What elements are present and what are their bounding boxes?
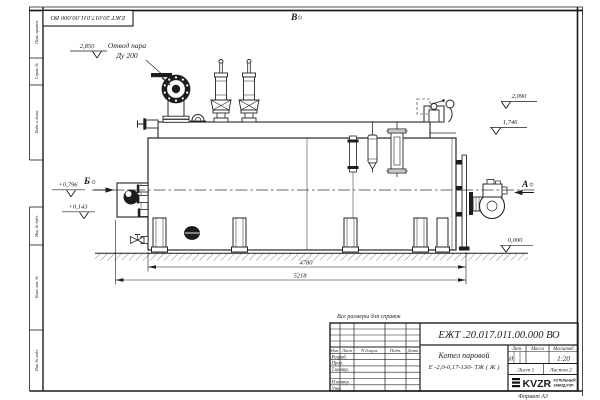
- drain-valve: [131, 235, 149, 244]
- margin-label: Взам. инв. №: [34, 276, 39, 298]
- format-note: Формат А3: [518, 394, 548, 400]
- view-label-v: В: [290, 13, 297, 23]
- dimension-value: 4780: [300, 260, 314, 267]
- manhole: [185, 227, 200, 240]
- margin-label: Инв. № дубл.: [34, 215, 39, 238]
- inverted-designation-box: ЕЖТ 20.017.011.00.000 ВО: [43, 11, 133, 27]
- feed-pump: [469, 180, 507, 219]
- boiler-drawing-canvas: Перв. примен. Справ. № Подп. и дата Инв.…: [0, 0, 600, 400]
- support-leg: [343, 218, 359, 252]
- elevation-mark-2090: 2,090: [501, 93, 537, 109]
- tb-h-data: Дата: [407, 348, 419, 353]
- elevation-value: +0,796: [58, 182, 78, 189]
- support-leg: [413, 218, 429, 252]
- tb-row-prov: Пров.: [331, 362, 344, 367]
- tb-row-utv: Утв.: [332, 387, 342, 392]
- safety-valve-2: [239, 60, 259, 123]
- elevation-mark-2850: 2,850: [70, 43, 107, 58]
- inverted-designation-text: ЕЖТ 20.017.011.00.000 ВО: [51, 14, 127, 21]
- view-label-a: А: [521, 180, 528, 190]
- logo-text: KVZR: [523, 378, 552, 390]
- tb-h-podp: Подп.: [389, 348, 401, 353]
- logo-sub2: ЗАВОД РЭП: [554, 384, 575, 388]
- elevation-mark-0000: 0,000: [500, 237, 533, 252]
- margin-column-labels: Перв. примен. Справ. № Подп. и дата Инв.…: [34, 20, 39, 372]
- margin-label: Справ. №: [34, 63, 39, 79]
- logo-sub1: КОТЕЛЬНЫЙ: [554, 379, 577, 383]
- tb-h-list: Лист: [341, 348, 352, 353]
- tb-product-type: Е -2,0-0,17-130- ТЖ ( Ж ): [428, 364, 500, 371]
- dimension-4780: 4780: [148, 260, 466, 269]
- support-leg: [232, 218, 248, 252]
- tb-col-scale: Масштаб: [552, 347, 574, 352]
- steam-callout-line1: Отвод пара: [108, 41, 147, 50]
- elevation-value: 2,850: [80, 43, 95, 50]
- elevation-value: 2,090: [512, 93, 527, 100]
- support-leg: [436, 218, 450, 252]
- drawing-sheet: Перв. примен. Справ. № Подп. и дата Инв.…: [0, 0, 600, 400]
- tb-row-nkontr: Н.контр.: [331, 381, 351, 386]
- tb-col-lit: Лит.: [511, 347, 522, 352]
- tb-lit-value: И: [508, 357, 514, 363]
- tb-sheet: Лист 1: [516, 368, 534, 374]
- view-label-mark: [298, 16, 301, 19]
- elevation-mark-0143: +0,143: [62, 204, 95, 219]
- tb-product-name: Котел паровой: [438, 351, 490, 360]
- view-label-b: Б: [83, 177, 90, 187]
- tb-sheets: Листов 2: [549, 368, 572, 374]
- margin-label: Перв. примен.: [34, 20, 39, 45]
- steam-outlet-valve: [151, 73, 190, 122]
- tb-row-tkontr: Т.контр.: [332, 368, 349, 373]
- view-label-mark: [92, 180, 95, 183]
- view-arrow-a: А: [514, 180, 534, 195]
- elevation-mark-1746: 1,746: [490, 119, 527, 135]
- tb-scale-value: 1:20: [557, 355, 570, 363]
- logo-bars-icon: [512, 378, 520, 380]
- dimension-value: 5218: [294, 273, 308, 280]
- safety-valve-1: [211, 60, 231, 123]
- steam-callout-line2: Ду 200: [115, 51, 137, 60]
- rear-pipe: [456, 155, 470, 251]
- logo-bars-icon: [512, 385, 520, 387]
- elevation-value: 0,000: [508, 237, 523, 244]
- elevation-mark-0796: +0,796: [52, 182, 85, 197]
- logo-bars-icon: [512, 382, 520, 384]
- pressure-gauge-siphon: [446, 100, 454, 122]
- tb-h-izm: Изм.: [330, 348, 339, 353]
- tb-row-razrab: Разраб.: [331, 355, 347, 360]
- sampling-valve: [138, 118, 159, 129]
- tb-col-mass: Масса: [530, 347, 544, 352]
- dimension-5218: 5218: [116, 273, 467, 282]
- elevation-value: 1,746: [503, 119, 518, 126]
- steam-outlet-callout: Отвод пара Ду 200: [108, 41, 165, 77]
- margin-label: Инв. № подл.: [34, 349, 39, 372]
- support-leg: [152, 218, 168, 252]
- tb-h-ndokum: N докум.: [360, 348, 378, 353]
- view-label-top: В: [290, 13, 302, 23]
- tb-designation: ЕЖТ .20.017.011.00.000 ВО: [437, 330, 560, 341]
- view-label-mark: [530, 183, 533, 186]
- lifting-eye: [190, 115, 206, 123]
- view-arrow-b: Б: [83, 177, 114, 193]
- downcomer-pipe: [348, 136, 359, 172]
- margin-label: Подп. и дата: [34, 111, 39, 135]
- company-logo: KVZR КОТЕЛЬНЫЙ ЗАВОД РЭП: [512, 378, 576, 390]
- burner: [117, 183, 148, 218]
- elevation-value: +0,143: [68, 204, 88, 211]
- reference-note: Все размеры для справок: [337, 313, 401, 320]
